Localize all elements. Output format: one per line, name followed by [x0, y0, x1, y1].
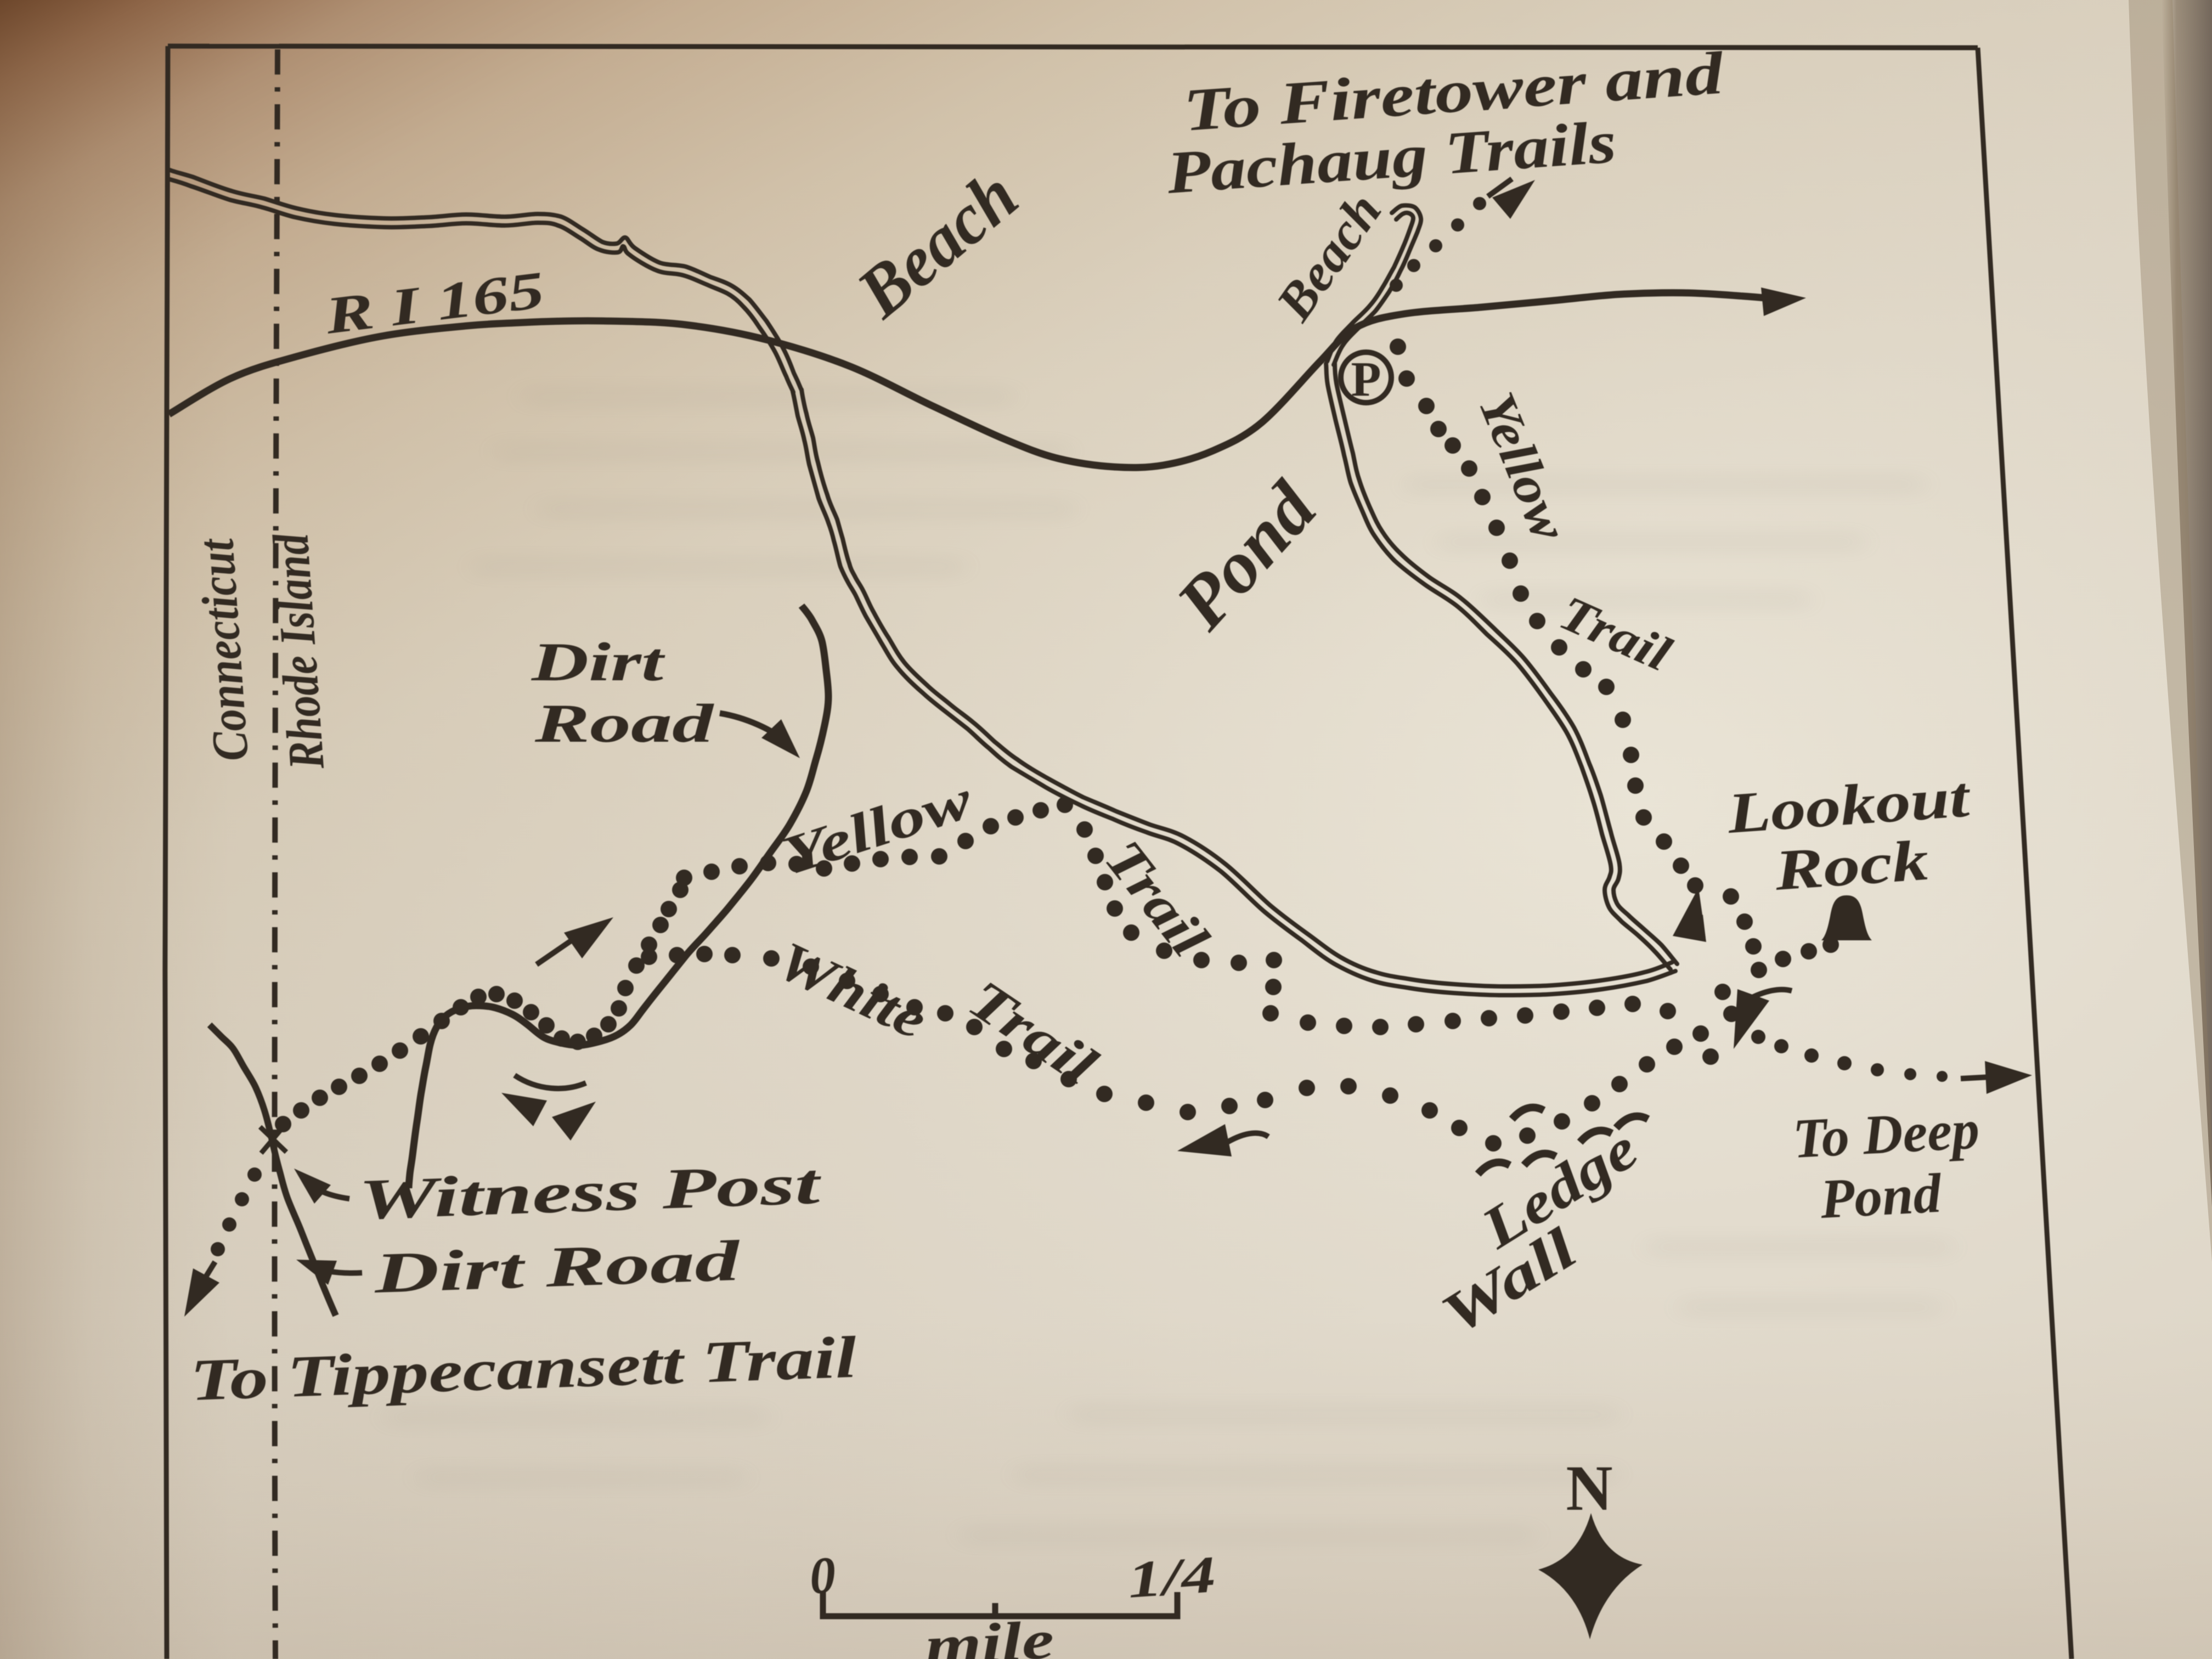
svg-text:N: N: [1566, 1452, 1612, 1524]
svg-text:Pond: Pond: [1818, 1163, 1944, 1231]
svg-text:P: P: [1351, 352, 1381, 407]
svg-text:1/4: 1/4: [1126, 1545, 1217, 1609]
svg-text:Rock: Rock: [1772, 828, 1931, 902]
svg-text:Dirt Road: Dirt Road: [373, 1228, 742, 1305]
svg-text:Road: Road: [534, 693, 715, 754]
svg-text:0: 0: [808, 1545, 838, 1605]
svg-text:mile: mile: [923, 1609, 1055, 1659]
svg-text:To Deep: To Deep: [1791, 1098, 1980, 1170]
svg-text:Dirt: Dirt: [531, 631, 666, 692]
